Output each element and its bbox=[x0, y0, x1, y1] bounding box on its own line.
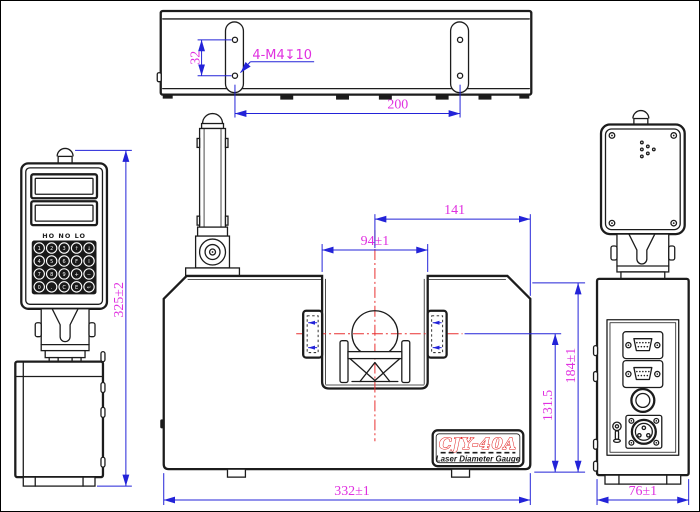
gauge-body-right-view bbox=[594, 279, 689, 484]
edge-nub bbox=[101, 457, 105, 467]
svg-text:2: 2 bbox=[50, 246, 53, 252]
tapped-hole bbox=[457, 37, 462, 42]
dome-cap bbox=[633, 111, 649, 119]
edge-nub bbox=[594, 346, 598, 356]
nameplate-subtitle: Laser Diameter Gauge bbox=[436, 455, 521, 464]
base-foot bbox=[605, 475, 681, 484]
svg-text:E: E bbox=[75, 285, 78, 291]
left-side-view: HO NO LO 1 2 3 ↑ ↓ 4 5 6 bbox=[15, 148, 132, 486]
bracket-knob bbox=[35, 323, 41, 337]
pivot-bracket bbox=[196, 236, 230, 268]
bracket-knob bbox=[611, 246, 617, 260]
tapped-hole bbox=[457, 73, 462, 78]
dim-label-131: 131.5 bbox=[541, 390, 556, 421]
svg-text:4: 4 bbox=[38, 259, 41, 265]
right-side-view: 76±1 bbox=[594, 111, 689, 505]
dome-cap bbox=[203, 114, 223, 124]
dim-label-141: 141 bbox=[444, 203, 465, 218]
svg-text:7: 7 bbox=[38, 272, 41, 278]
dim-label-200: 200 bbox=[387, 98, 408, 113]
dim-label-32: 32 bbox=[188, 51, 203, 65]
dim-label-184: 184±1 bbox=[564, 348, 579, 384]
svg-text:6: 6 bbox=[63, 259, 66, 265]
mounting-slot-right bbox=[451, 22, 469, 93]
top-view: 32 4-M4↧10 200 bbox=[157, 11, 531, 118]
foot bbox=[452, 469, 470, 477]
keypad: 1 2 3 ↑ ↓ 4 5 6 F I 7 8 9 + − 0 . bbox=[32, 241, 96, 294]
svg-text:9: 9 bbox=[63, 272, 66, 278]
dim-label-332: 332±1 bbox=[334, 484, 370, 499]
db9-connector-icon bbox=[623, 361, 663, 388]
base-foot bbox=[23, 477, 95, 486]
svg-text:8: 8 bbox=[50, 272, 53, 278]
svg-text:+: + bbox=[74, 272, 78, 278]
nameplate-model: CJY-40A bbox=[439, 434, 517, 453]
dim-overall-width: 332±1 bbox=[164, 473, 531, 505]
display-window-1 bbox=[31, 174, 97, 198]
limit-indicator-labels: HO NO LO bbox=[42, 232, 86, 240]
edge-nub bbox=[594, 439, 598, 449]
display-head-rear bbox=[601, 111, 685, 235]
top-view-body bbox=[161, 11, 532, 95]
tapped-hole bbox=[232, 73, 237, 78]
edge-nub bbox=[594, 372, 598, 382]
front-view: CJY-40A Laser Diameter Gauge 141 94±1 18… bbox=[160, 114, 585, 505]
svg-text:0: 0 bbox=[38, 285, 41, 291]
dim-label-94: 94±1 bbox=[361, 234, 390, 249]
svg-text:F: F bbox=[75, 259, 78, 265]
drawing-svg: 32 4-M4↧10 200 bbox=[1, 1, 699, 511]
engineering-drawing-sheet: 32 4-M4↧10 200 bbox=[0, 0, 700, 512]
gauge-body-left-view bbox=[15, 352, 105, 486]
edge-nub bbox=[101, 352, 105, 362]
edge-nub bbox=[101, 383, 105, 393]
svg-text:I: I bbox=[88, 259, 89, 265]
nameplate: CJY-40A Laser Diameter Gauge bbox=[433, 430, 524, 466]
laser-window-right bbox=[428, 311, 447, 358]
dome-cap bbox=[57, 148, 73, 156]
edge-nub bbox=[594, 461, 598, 471]
dim-body-height: 184±1 bbox=[532, 283, 585, 472]
svg-text:5: 5 bbox=[50, 259, 53, 265]
laser-window-left bbox=[303, 311, 322, 358]
dim-label-76: 76±1 bbox=[629, 484, 658, 499]
bracket-knob bbox=[669, 246, 675, 260]
edge-nub bbox=[160, 419, 163, 428]
svg-text:3: 3 bbox=[63, 246, 66, 252]
svg-text:↓: ↓ bbox=[87, 246, 91, 252]
svg-text:−: − bbox=[87, 272, 91, 278]
svg-text:↵: ↵ bbox=[87, 285, 91, 291]
svg-text:1: 1 bbox=[38, 246, 41, 252]
foot bbox=[227, 469, 245, 477]
handle-column bbox=[186, 114, 240, 276]
mount-bracket-left-view bbox=[35, 309, 95, 362]
tapped-hole bbox=[232, 37, 237, 42]
svg-text:↑: ↑ bbox=[74, 246, 78, 252]
power-connector-icon bbox=[626, 415, 662, 448]
mounting-slot-left bbox=[225, 22, 243, 93]
db9-connector-icon bbox=[623, 332, 663, 359]
bracket-knob bbox=[89, 323, 95, 337]
svg-text:C: C bbox=[62, 285, 66, 291]
dim-label-325: 325±2 bbox=[112, 282, 127, 318]
edge-nub bbox=[101, 407, 105, 417]
side-nub bbox=[157, 73, 161, 82]
thread-callout-label: 4-M4↧10 bbox=[252, 48, 312, 63]
display-head-front: HO NO LO 1 2 3 ↑ ↓ 4 5 6 bbox=[21, 148, 107, 308]
mount-bracket-right-view bbox=[611, 234, 675, 279]
display-window-2 bbox=[31, 201, 97, 225]
